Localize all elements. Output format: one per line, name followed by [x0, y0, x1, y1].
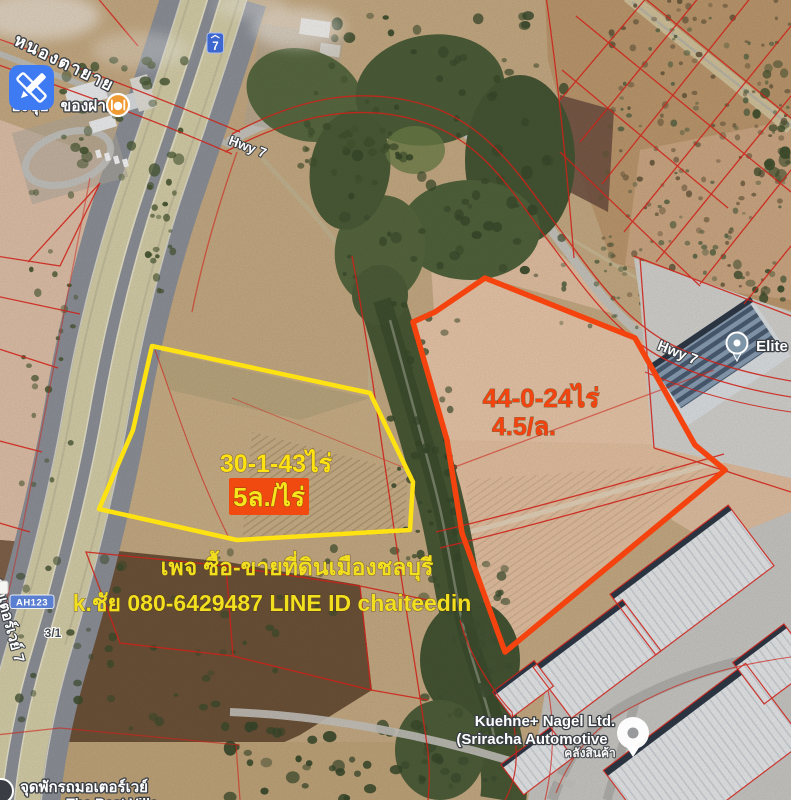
contact-line2: k.ชัย 080-6429487 LINE ID chaiteedin: [73, 590, 472, 616]
satellite-map[interactable]: หนองตายาย Hwy 7 Hwy 7 มอเตอร์เวย์ 7 องชุ…: [0, 0, 791, 800]
warehouse-th-label: คลังสินค้า: [564, 746, 616, 760]
parcel-yellow-price-label: 5ล./ไร่: [233, 481, 305, 512]
rest-area-sub-label: The Best Ville: [66, 795, 158, 800]
svg-text:7: 7: [212, 41, 218, 53]
edit-tools-icon[interactable]: [9, 65, 54, 110]
kuehne-label-line1: Kuehne+ Nagel Ltd.: [475, 713, 615, 730]
restaurant-marker[interactable]: [107, 94, 129, 116]
contact-line1: เพจ ซื้อ-ขายที่ดินเมืองชลบุรี: [161, 550, 434, 582]
parcel-orange-area-label: 44-0-24ไร่: [483, 382, 600, 413]
parcel-yellow-area-label: 30-1-43ไร่: [220, 448, 333, 478]
parcel-orange-price-label: 4.5/ล.: [492, 413, 556, 441]
partial-badge-left: [0, 581, 8, 594]
svg-text:AH123: AH123: [16, 598, 48, 609]
motorway-shield: 7: [207, 33, 224, 53]
house-number-label: 3/1: [45, 626, 62, 640]
elite-label: Elite: [756, 338, 788, 355]
ah123-badge: AH123: [10, 595, 54, 609]
